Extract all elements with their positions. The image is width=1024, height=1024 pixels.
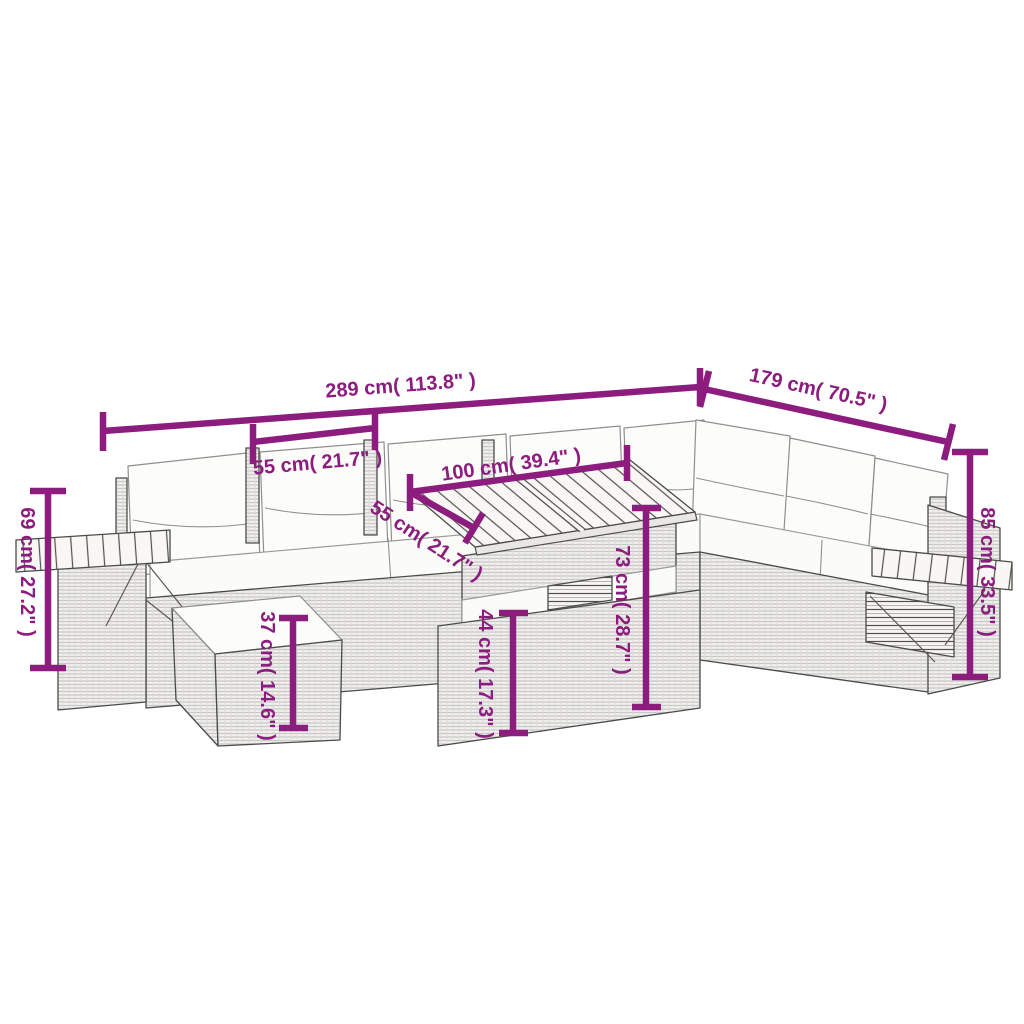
dimension-diagram: 289 cm( 113.8" ) 179 cm( 70.5" ) 55 cm( … — [0, 0, 1024, 1024]
dim-label-total-width: 289 cm( 113.8" ) — [325, 369, 477, 402]
dim-label-table-base-height: 44 cm( 17.3" ) — [474, 609, 496, 739]
dim-label-ottoman-height: 37 cm( 14.6" ) — [256, 611, 278, 741]
dim-label-armrest-height: 69 cm( 27.2" ) — [16, 507, 38, 637]
diagram-canvas: 289 cm( 113.8" ) 179 cm( 70.5" ) 55 cm( … — [0, 0, 1024, 1024]
dim-label-right-side-depth: 179 cm( 70.5" ) — [747, 364, 889, 416]
dim-label-table-height: 73 cm( 28.7" ) — [611, 545, 633, 675]
dim-label-back-height: 85 cm( 33.5" ) — [976, 507, 998, 637]
